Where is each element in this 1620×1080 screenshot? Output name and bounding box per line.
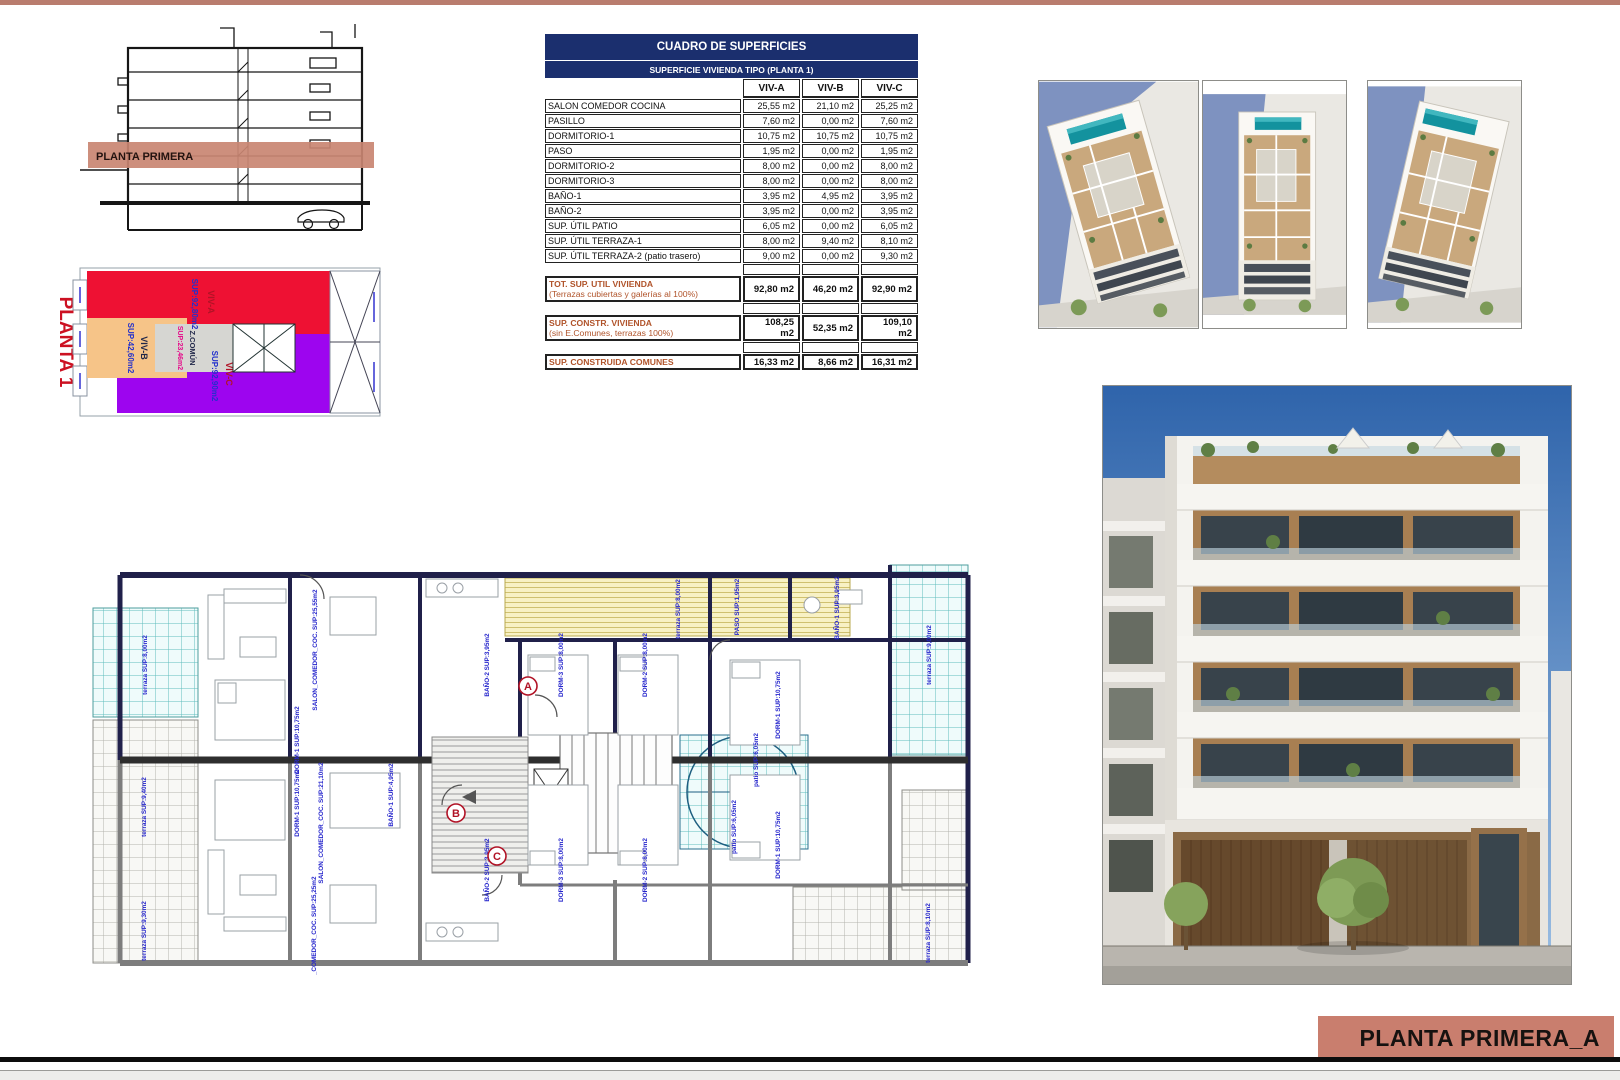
summary-row-comunes: SUP. CONSTRUIDA COMUNES 16,33 m2 8,66 m2… xyxy=(545,354,918,370)
column-header-viv-b: VIV-B xyxy=(802,79,859,98)
table-subtitle: SUPERFICIE VIVIENDA TIPO (PLANTA 1) xyxy=(545,61,918,78)
stairwell-void xyxy=(330,271,380,413)
svg-text:BAÑO-2 SUP:3,95m2: BAÑO-2 SUP:3,95m2 xyxy=(482,633,491,697)
plan-sheet: PLANTA PRIMERA PLANTA 1 xyxy=(0,0,1620,1080)
table-row: SUP. ÚTIL TERRAZA-2 (patio trasero)9,00 … xyxy=(545,249,918,263)
key-plan-zoning: PLANTA 1 VIV-A SUP:92,80m2 VI xyxy=(40,262,390,422)
table-row: DORMITORIO-38,00 m20,00 m28,00 m2 xyxy=(545,174,918,188)
facade-render xyxy=(1102,385,1572,985)
aerial-render-3 xyxy=(1367,80,1522,329)
svg-text:DORM-2 SUP:8,00m2: DORM-2 SUP:8,00m2 xyxy=(642,838,649,902)
top-accent-bar xyxy=(0,0,1620,5)
letter-c: C xyxy=(493,851,501,863)
svg-text:BAÑO-1 SUP:3,95m2: BAÑO-1 SUP:3,95m2 xyxy=(832,576,841,640)
svg-text:terraza SUP:8,00m2: terraza SUP:8,00m2 xyxy=(675,579,682,639)
svg-text:DORM-1 SUP:10,75m2: DORM-1 SUP:10,75m2 xyxy=(294,769,301,837)
key-plan-left-tabs xyxy=(73,280,87,396)
zone-label-viv-a: VIV-A xyxy=(206,290,216,314)
aerial-render-2 xyxy=(1202,80,1347,329)
svg-text:terraza SUP:9,00m2: terraza SUP:9,00m2 xyxy=(926,625,933,685)
table-row: PASO1,95 m20,00 m21,95 m2 xyxy=(545,144,918,158)
svg-text:BAÑO-2 SUP:3,95m2: BAÑO-2 SUP:3,95m2 xyxy=(482,838,491,902)
table-title: CUADRO DE SUPERFICIES xyxy=(545,34,918,60)
table-row: SUP. ÚTIL TERRAZA-18,00 m29,40 m28,10 m2 xyxy=(545,234,918,248)
table-row: DORMITORIO-28,00 m20,00 m28,00 m2 xyxy=(545,159,918,173)
svg-text:patio SUP:6,05m2: patio SUP:6,05m2 xyxy=(753,733,760,787)
section-car xyxy=(298,210,344,229)
elevator-hatch-box xyxy=(233,324,295,372)
svg-text:terraza SUP:9,40m2: terraza SUP:9,40m2 xyxy=(141,777,148,837)
sheet-title: PLANTA PRIMERA_A xyxy=(1359,1025,1600,1052)
svg-text:DORM-1 SUP:10,75m2: DORM-1 SUP:10,75m2 xyxy=(775,671,782,739)
column-header-viv-a: VIV-A xyxy=(743,79,800,98)
svg-text:SALON_COMEDOR_COC. SUP:25,55m2: SALON_COMEDOR_COC. SUP:25,55m2 xyxy=(312,589,319,711)
table-row: DORMITORIO-110,75 m210,75 m210,75 m2 xyxy=(545,129,918,143)
svg-text:DORM-1 SUP:10,75m2: DORM-1 SUP:10,75m2 xyxy=(294,706,301,774)
table-row: BAÑO-23,95 m20,00 m23,95 m2 xyxy=(545,204,918,218)
zone-label-comun: Z.COMÚN xyxy=(188,331,197,366)
spacer-row xyxy=(545,303,918,314)
zone-label-viv-c: VIV-C xyxy=(224,362,234,386)
svg-text:terraza SUP:9,30m2: terraza SUP:9,30m2 xyxy=(141,901,148,961)
svg-text:DORM-3 SUP:8,00m2: DORM-3 SUP:8,00m2 xyxy=(558,838,565,902)
zone-sup-comun: SUP:23,46m2 xyxy=(176,326,183,370)
summary-row-constr: SUP. CONSTR. VIVIENDA(sin E.Comunes, ter… xyxy=(545,315,918,341)
table-row: SALON COMEDOR COCINA25,55 m221,10 m225,2… xyxy=(545,99,918,113)
summary-row-total-util: TOT. SUP. UTIL VIVIENDA(Terrazas cubiert… xyxy=(545,276,918,302)
svg-text:DORM-2 SUP:8,00m2: DORM-2 SUP:8,00m2 xyxy=(642,633,649,697)
letter-a: A xyxy=(524,681,532,693)
svg-text:DORM-1 SUP:10,75m2: DORM-1 SUP:10,75m2 xyxy=(775,811,782,879)
bottom-rule xyxy=(0,1057,1620,1062)
svg-text:PASO SUP:1,95m2: PASO SUP:1,95m2 xyxy=(734,578,741,635)
section-band-label: PLANTA PRIMERA xyxy=(96,151,193,163)
spacer-row xyxy=(545,264,918,275)
zone-sup-viv-c: SUP:92,90m2 xyxy=(210,351,219,402)
table-row: SUP. ÚTIL PATIO6,05 m20,00 m26,05 m2 xyxy=(545,219,918,233)
bottom-strip xyxy=(0,1070,1620,1080)
zone-sup-viv-b: SUP:42,60m2 xyxy=(126,323,135,374)
svg-text:SALON_COMEDOR_COC. SUP:21,10m2: SALON_COMEDOR_COC. SUP:21,10m2 xyxy=(318,762,325,884)
sheet-title-box: PLANTA PRIMERA_A xyxy=(1318,1016,1614,1061)
surface-table: CUADRO DE SUPERFICIES SUPERFICIE VIVIEND… xyxy=(543,33,917,371)
spacer-row xyxy=(545,342,918,353)
floor-plan-drawing: terraza SUP:8,00m2 SALON_COMEDOR_COC. SU… xyxy=(90,545,990,975)
zone-sup-viv-a: SUP:92,80m2 xyxy=(190,279,199,330)
svg-text:terraza SUP:8,10m2: terraza SUP:8,10m2 xyxy=(925,903,932,963)
svg-text:BAÑO-1 SUP:4,95m2: BAÑO-1 SUP:4,95m2 xyxy=(386,763,395,827)
table-row: BAÑO-13,95 m24,95 m23,95 m2 xyxy=(545,189,918,203)
left-neighbor-building xyxy=(1103,478,1167,948)
building-section-drawing: PLANTA PRIMERA xyxy=(70,20,390,248)
zone-label-viv-b: VIV-B xyxy=(139,336,149,360)
table-row: PASILLO7,60 m20,00 m27,60 m2 xyxy=(545,114,918,128)
column-header-viv-c: VIV-C xyxy=(861,79,918,98)
right-neighbor-sliver xyxy=(1551,671,1571,951)
aerial-render-1 xyxy=(1038,80,1199,329)
svg-text:SALON_COMEDOR_COC. SUP:25,25m2: SALON_COMEDOR_COC. SUP:25,25m2 xyxy=(311,876,318,975)
svg-text:DORM-3 SUP:8,00m2: DORM-3 SUP:8,00m2 xyxy=(558,633,565,697)
svg-text:patio SUP:6,05m2: patio SUP:6,05m2 xyxy=(731,800,738,854)
section-lines xyxy=(80,24,370,230)
svg-text:terraza SUP:8,00m2: terraza SUP:8,00m2 xyxy=(142,635,149,695)
letter-b: B xyxy=(452,808,460,820)
